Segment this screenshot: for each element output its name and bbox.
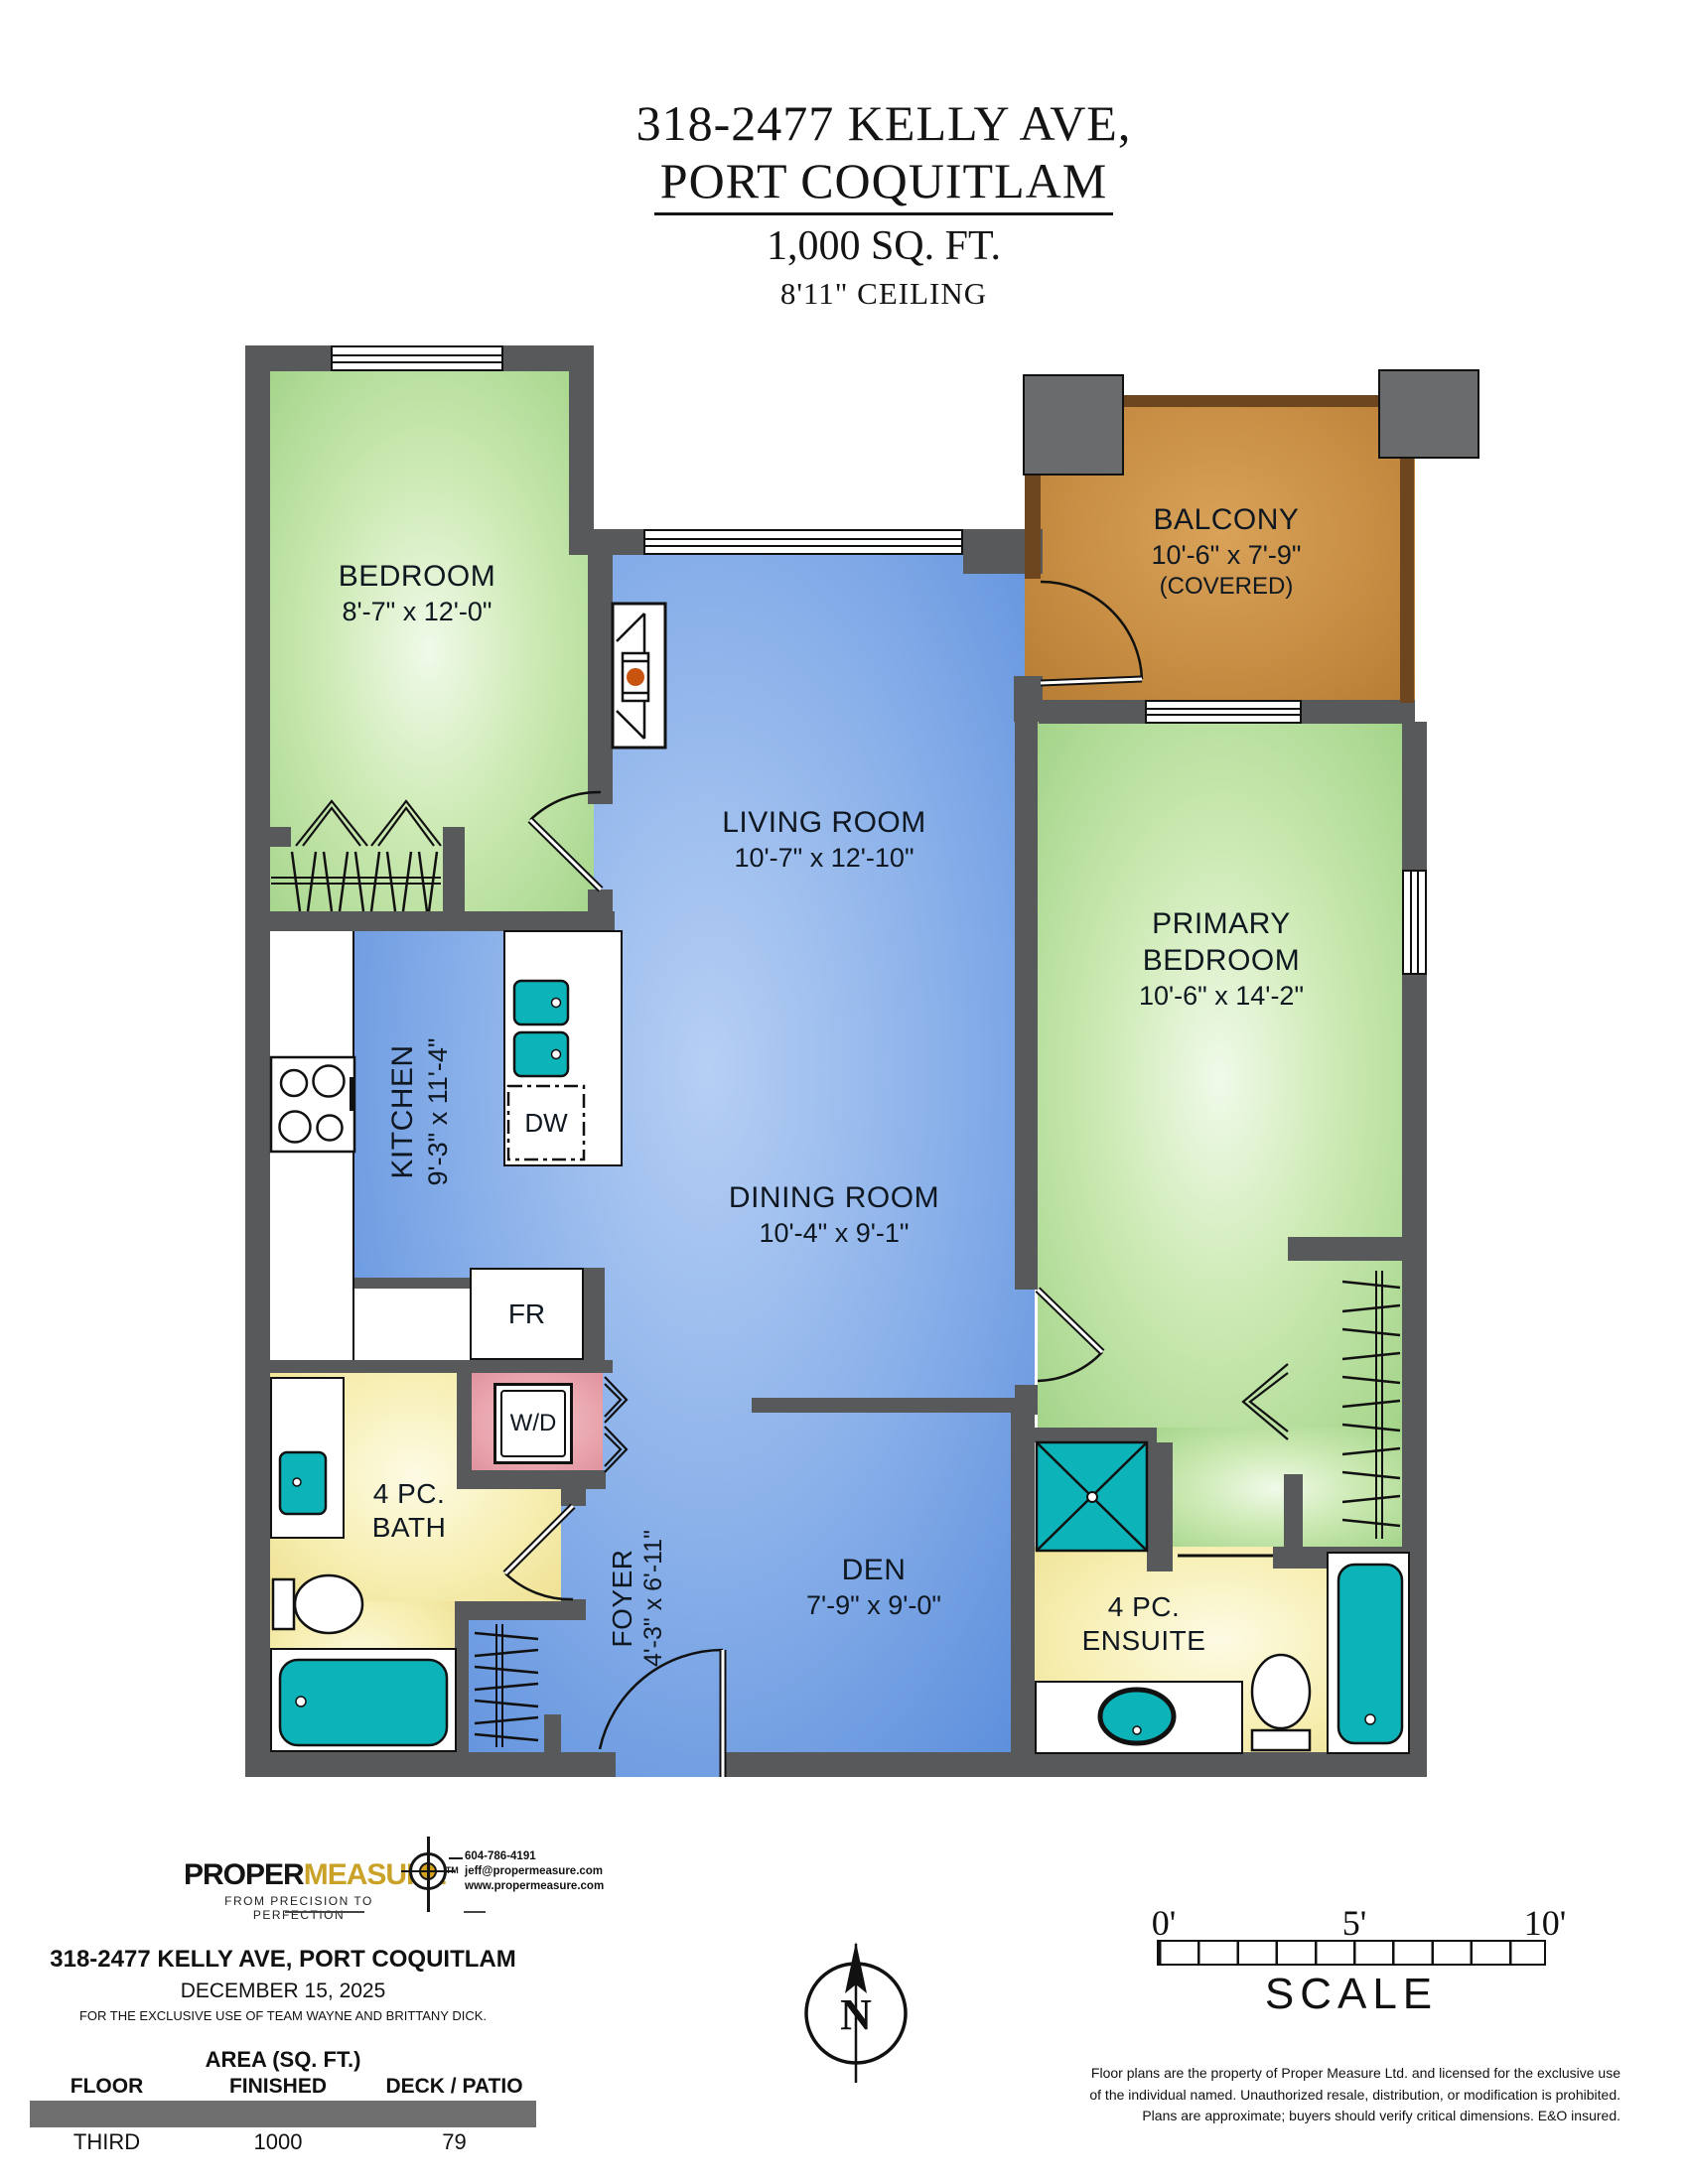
den-label: DEN 7'-9" x 9'-0" [725,1552,1023,1622]
footer-exclusive-use: FOR THE EXCLUSIVE USE OF TEAM WAYNE AND … [30,2008,536,2023]
scale-tick-10: 10' [1509,1902,1581,1944]
logo-contact: 604-786-4191 jeff@propermeasure.com www.… [465,1849,624,1894]
laundry-closet-doors [605,1377,627,1472]
fridge-label: FR [470,1298,584,1330]
header-floor: FLOOR [30,2075,184,2099]
logo-email: jeff@propermeasure.com [465,1864,624,1879]
area-table-divider-bar [30,2101,536,2127]
living-room-label: LIVING ROOM 10'-7" x 12'-10" [635,804,1013,875]
scale-ruler [1157,1940,1546,1966]
bath-door [505,1506,573,1599]
logo-crosshair-v [427,1837,430,1912]
scale-tick-5: 5' [1325,1902,1384,1944]
footer-rule-right [464,1911,486,1913]
dishwasher-label: DW [508,1108,584,1139]
logo-phone: 604-786-4191 [465,1849,624,1864]
shower-icon [1037,1442,1147,1551]
logo-tagline: FROM PRECISION TO PERFECTION [187,1894,411,1922]
cell-deck-patio: 79 [372,2129,536,2155]
logo-crosshair-h [401,1870,455,1872]
area-table-headers: FLOOR FINISHED DECK / PATIO [30,2075,536,2099]
foyer-label: FOYER 4'-3" x 6'-11" [606,1459,685,1737]
logo-brand-proper: PROPER [184,1858,304,1891]
scale-label: SCALE [1231,1970,1472,2019]
bath-toilet-icon [273,1575,362,1633]
header-deck-patio: DECK / PATIO [372,2075,536,2099]
fixtures-overlay [0,0,1688,2184]
foyer-closet-rod-hangers [475,1624,538,1747]
area-table-title: AREA (SQ. FT.) [30,2047,536,2073]
footer-date: DECEMBER 15, 2025 [30,1979,536,2003]
bedroom-closet-doors [271,801,441,911]
stove-icon [271,1057,355,1152]
washer-dryer-label: W/D [493,1410,573,1437]
compass-north-label: N [826,1989,886,2040]
logo-connector-line [449,1857,463,1859]
scale-tick-0: 0' [1134,1902,1194,1944]
primary-bedroom-door [1038,1290,1102,1381]
footer-address: 318-2477 KELLY AVE, PORT COQUITLAM [30,1946,536,1974]
balcony-label: BALCONY 10'-6" x 7'-9" (COVERED) [1046,501,1407,602]
disclaimer-line: of the individual named. Unauthorized re… [1041,2085,1620,2107]
disclaimer-line: Plans are approximate; buyers should ver… [1041,2106,1620,2127]
footer-rule-left [285,1911,364,1913]
ensuite-label: 4 PC. ENSUITE [1045,1590,1243,1658]
dining-room-label: DINING ROOM 10'-4" x 9'-1" [645,1179,1023,1250]
ensuite-tub-icon [1338,1565,1402,1743]
disclaimer: Floor plans are the property of Proper M… [1041,2063,1620,2127]
ensuite-toilet-icon [1252,1655,1310,1750]
primary-bedroom-label: PRIMARY BEDROOM 10'-6" x 14'-2" [1038,905,1405,1013]
cell-floor: THIRD [30,2129,184,2155]
floor-plan-page: 318-2477 KELLY AVE, PORT COQUITLAM 1,000… [0,0,1688,2184]
area-table-row: THIRD 1000 79 [30,2129,536,2155]
bedroom-label: BEDROOM 8'-7" x 12'-0" [268,558,566,628]
disclaimer-line: Floor plans are the property of Proper M… [1041,2063,1620,2085]
bath-label: 4 PC. BATH [310,1477,508,1545]
fireplace-icon [613,604,665,748]
bedroom-door [530,792,601,889]
primary-closet-door [1243,1364,1288,1439]
cell-finished: 1000 [184,2129,372,2155]
logo-website: www.propermeasure.com [465,1879,624,1894]
ensuite-sink-icon [1100,1690,1174,1743]
kitchen-sinks-icon [514,981,568,1076]
primary-closet-rod-hangers [1342,1271,1400,1539]
bath-tub-icon [280,1660,447,1745]
header-finished: FINISHED [184,2075,372,2099]
kitchen-label: KITCHEN 9'-3" x 11'-4" [384,933,474,1291]
